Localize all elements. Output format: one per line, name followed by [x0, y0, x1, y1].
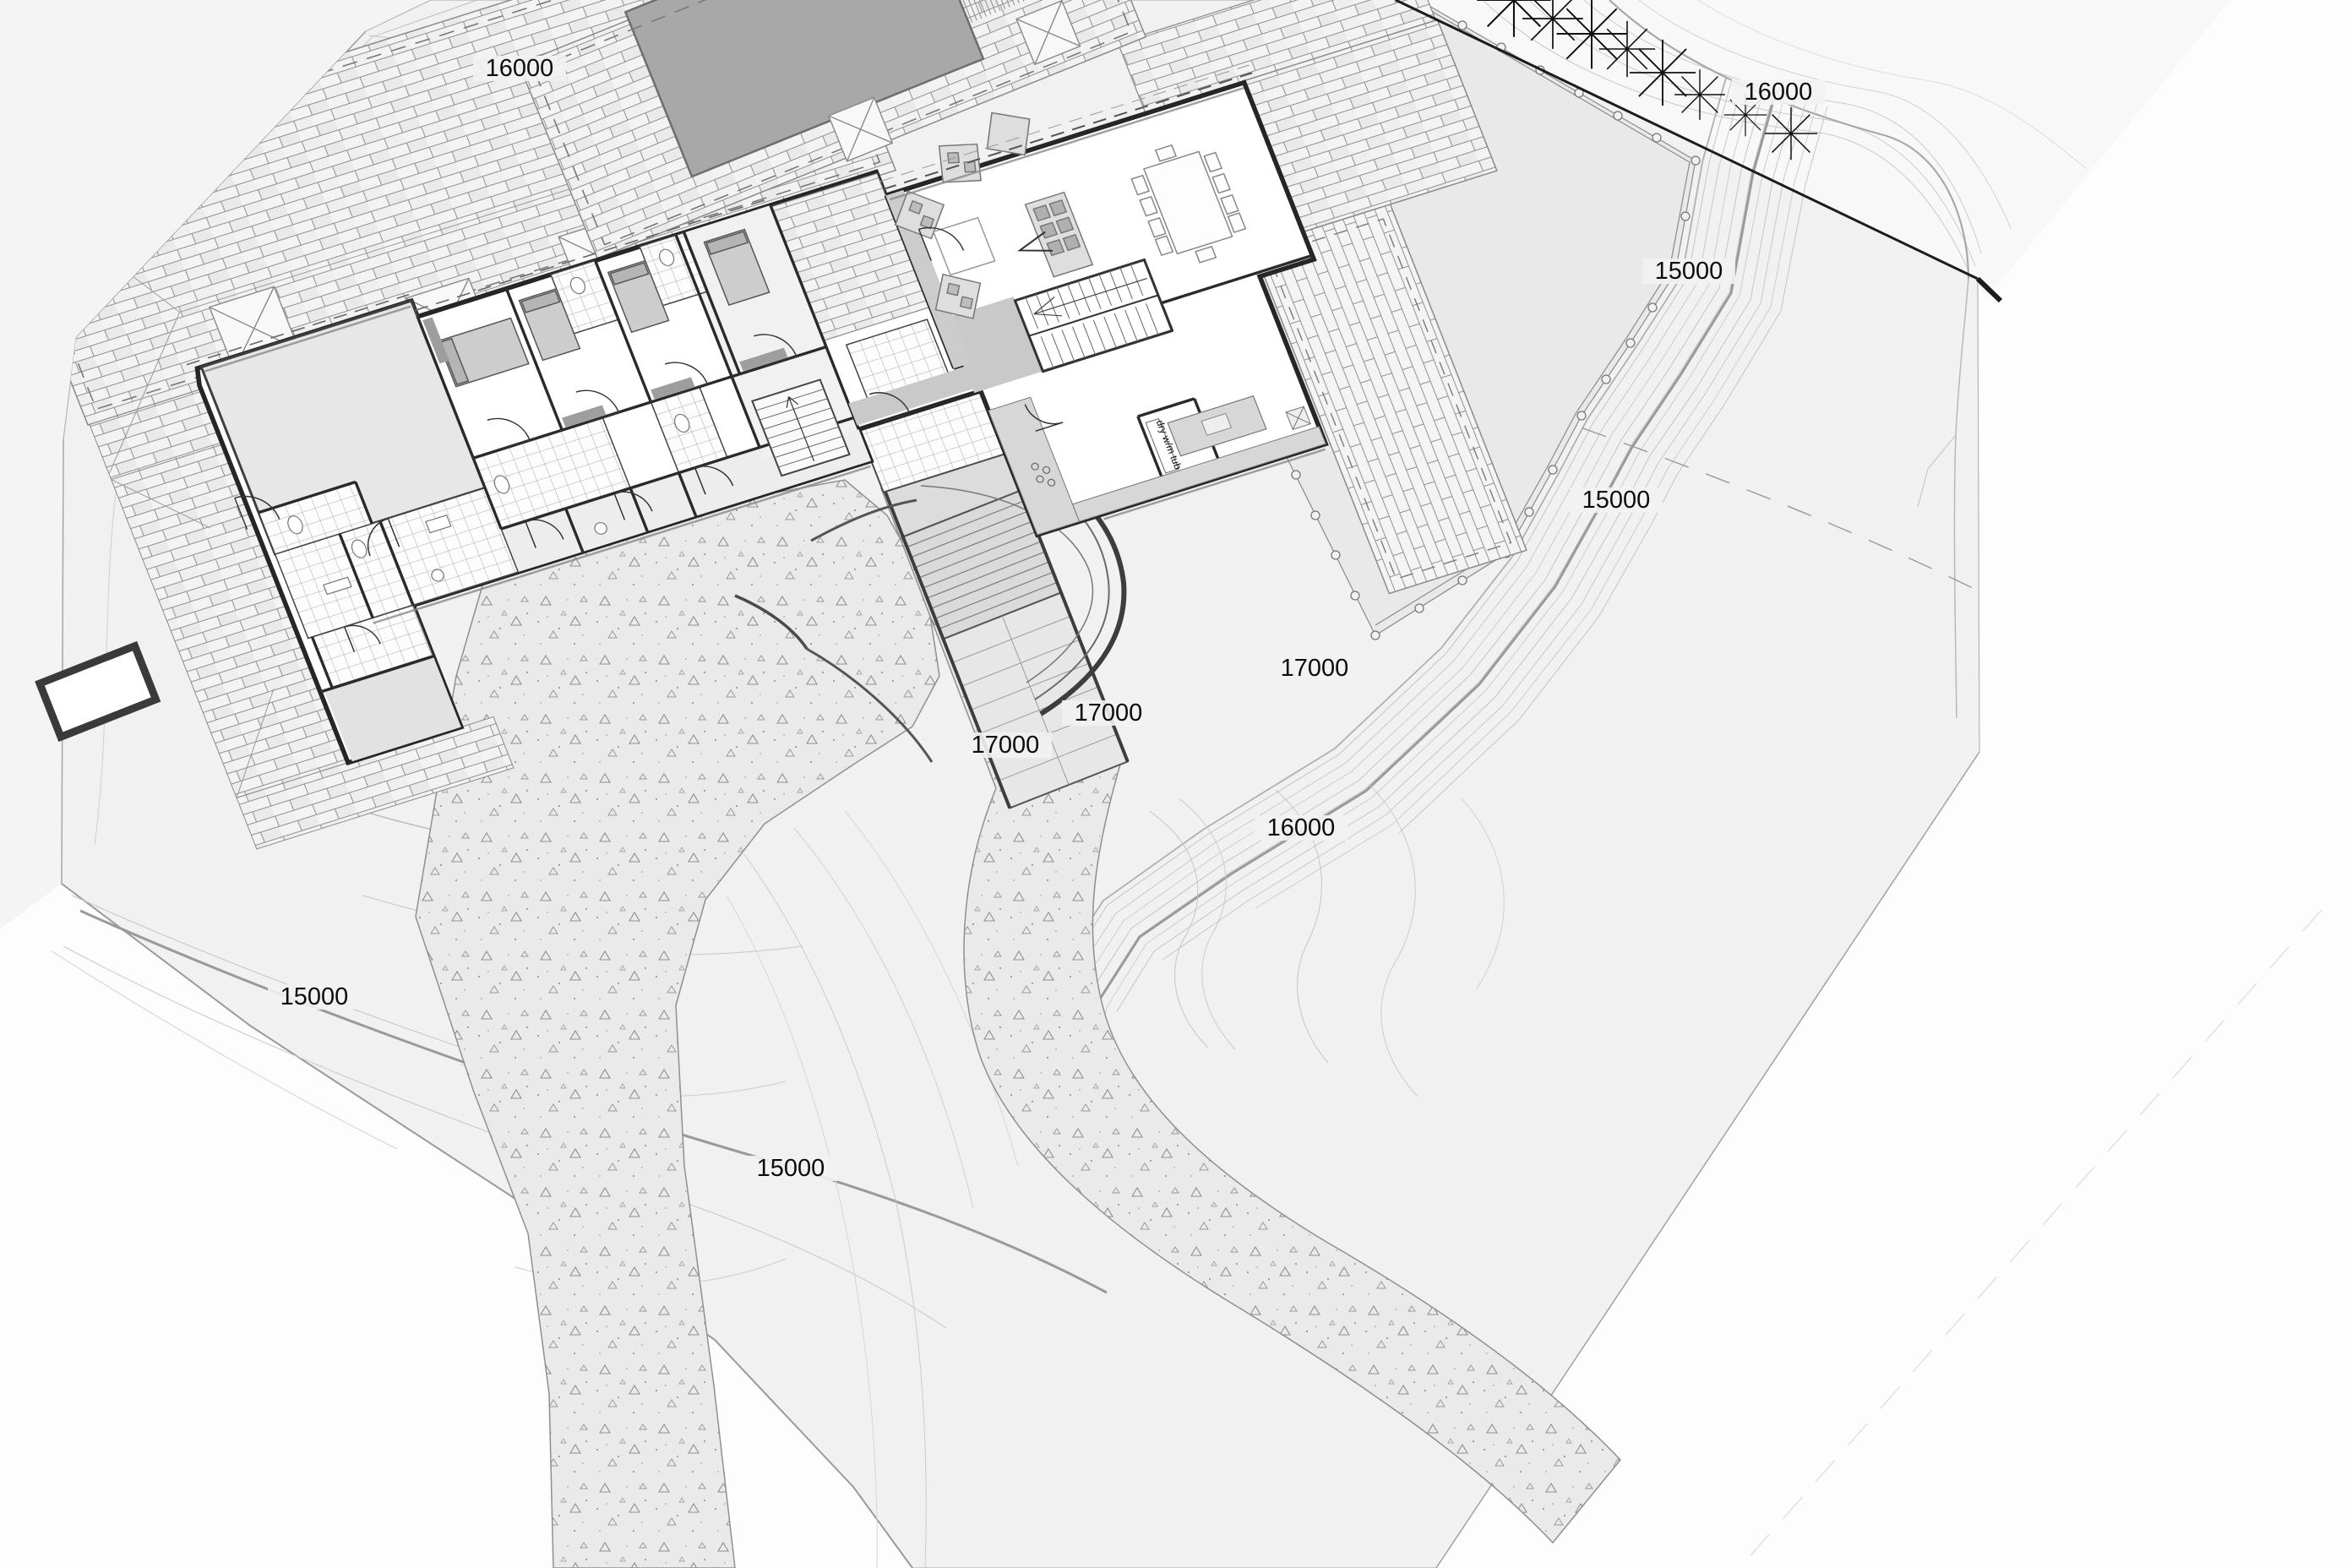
svg-text:16000: 16000: [1745, 79, 1813, 106]
svg-text:17000: 17000: [1075, 700, 1143, 727]
svg-text:16000: 16000: [1267, 814, 1336, 841]
svg-text:17000: 17000: [1281, 655, 1349, 682]
svg-text:15000: 15000: [280, 983, 349, 1010]
svg-text:15000: 15000: [1582, 487, 1651, 514]
svg-text:15000: 15000: [1655, 258, 1723, 285]
svg-text:17000: 17000: [972, 732, 1040, 759]
svg-text:16000: 16000: [486, 55, 554, 82]
svg-text:15000: 15000: [757, 1155, 825, 1182]
